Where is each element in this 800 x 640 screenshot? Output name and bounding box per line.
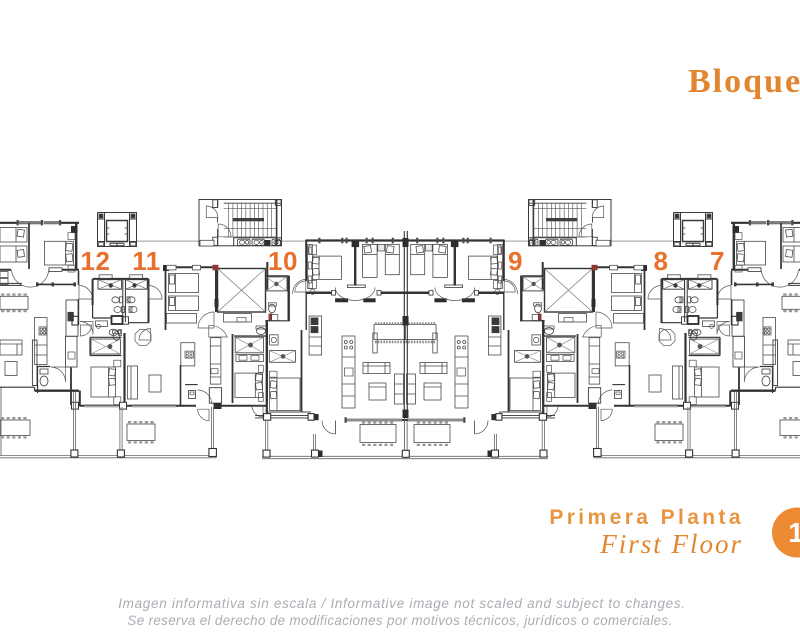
svg-text:1: 1: [788, 517, 800, 548]
svg-text:7: 7: [710, 246, 725, 276]
svg-text:First Floor: First Floor: [599, 529, 743, 559]
svg-text:Bloque: Bloque: [688, 63, 800, 100]
svg-text:8: 8: [654, 246, 669, 276]
svg-text:9: 9: [508, 246, 523, 276]
svg-text:10: 10: [268, 246, 298, 276]
svg-text:Se reserva el derecho de modif: Se reserva el derecho de modificaciones …: [127, 613, 672, 628]
svg-text:11: 11: [132, 246, 161, 276]
svg-text:12: 12: [81, 246, 111, 276]
svg-text:Imagen informativa sin escala: Imagen informativa sin escala / Informat…: [118, 596, 686, 611]
svg-text:Primera Planta: Primera Planta: [549, 506, 744, 529]
